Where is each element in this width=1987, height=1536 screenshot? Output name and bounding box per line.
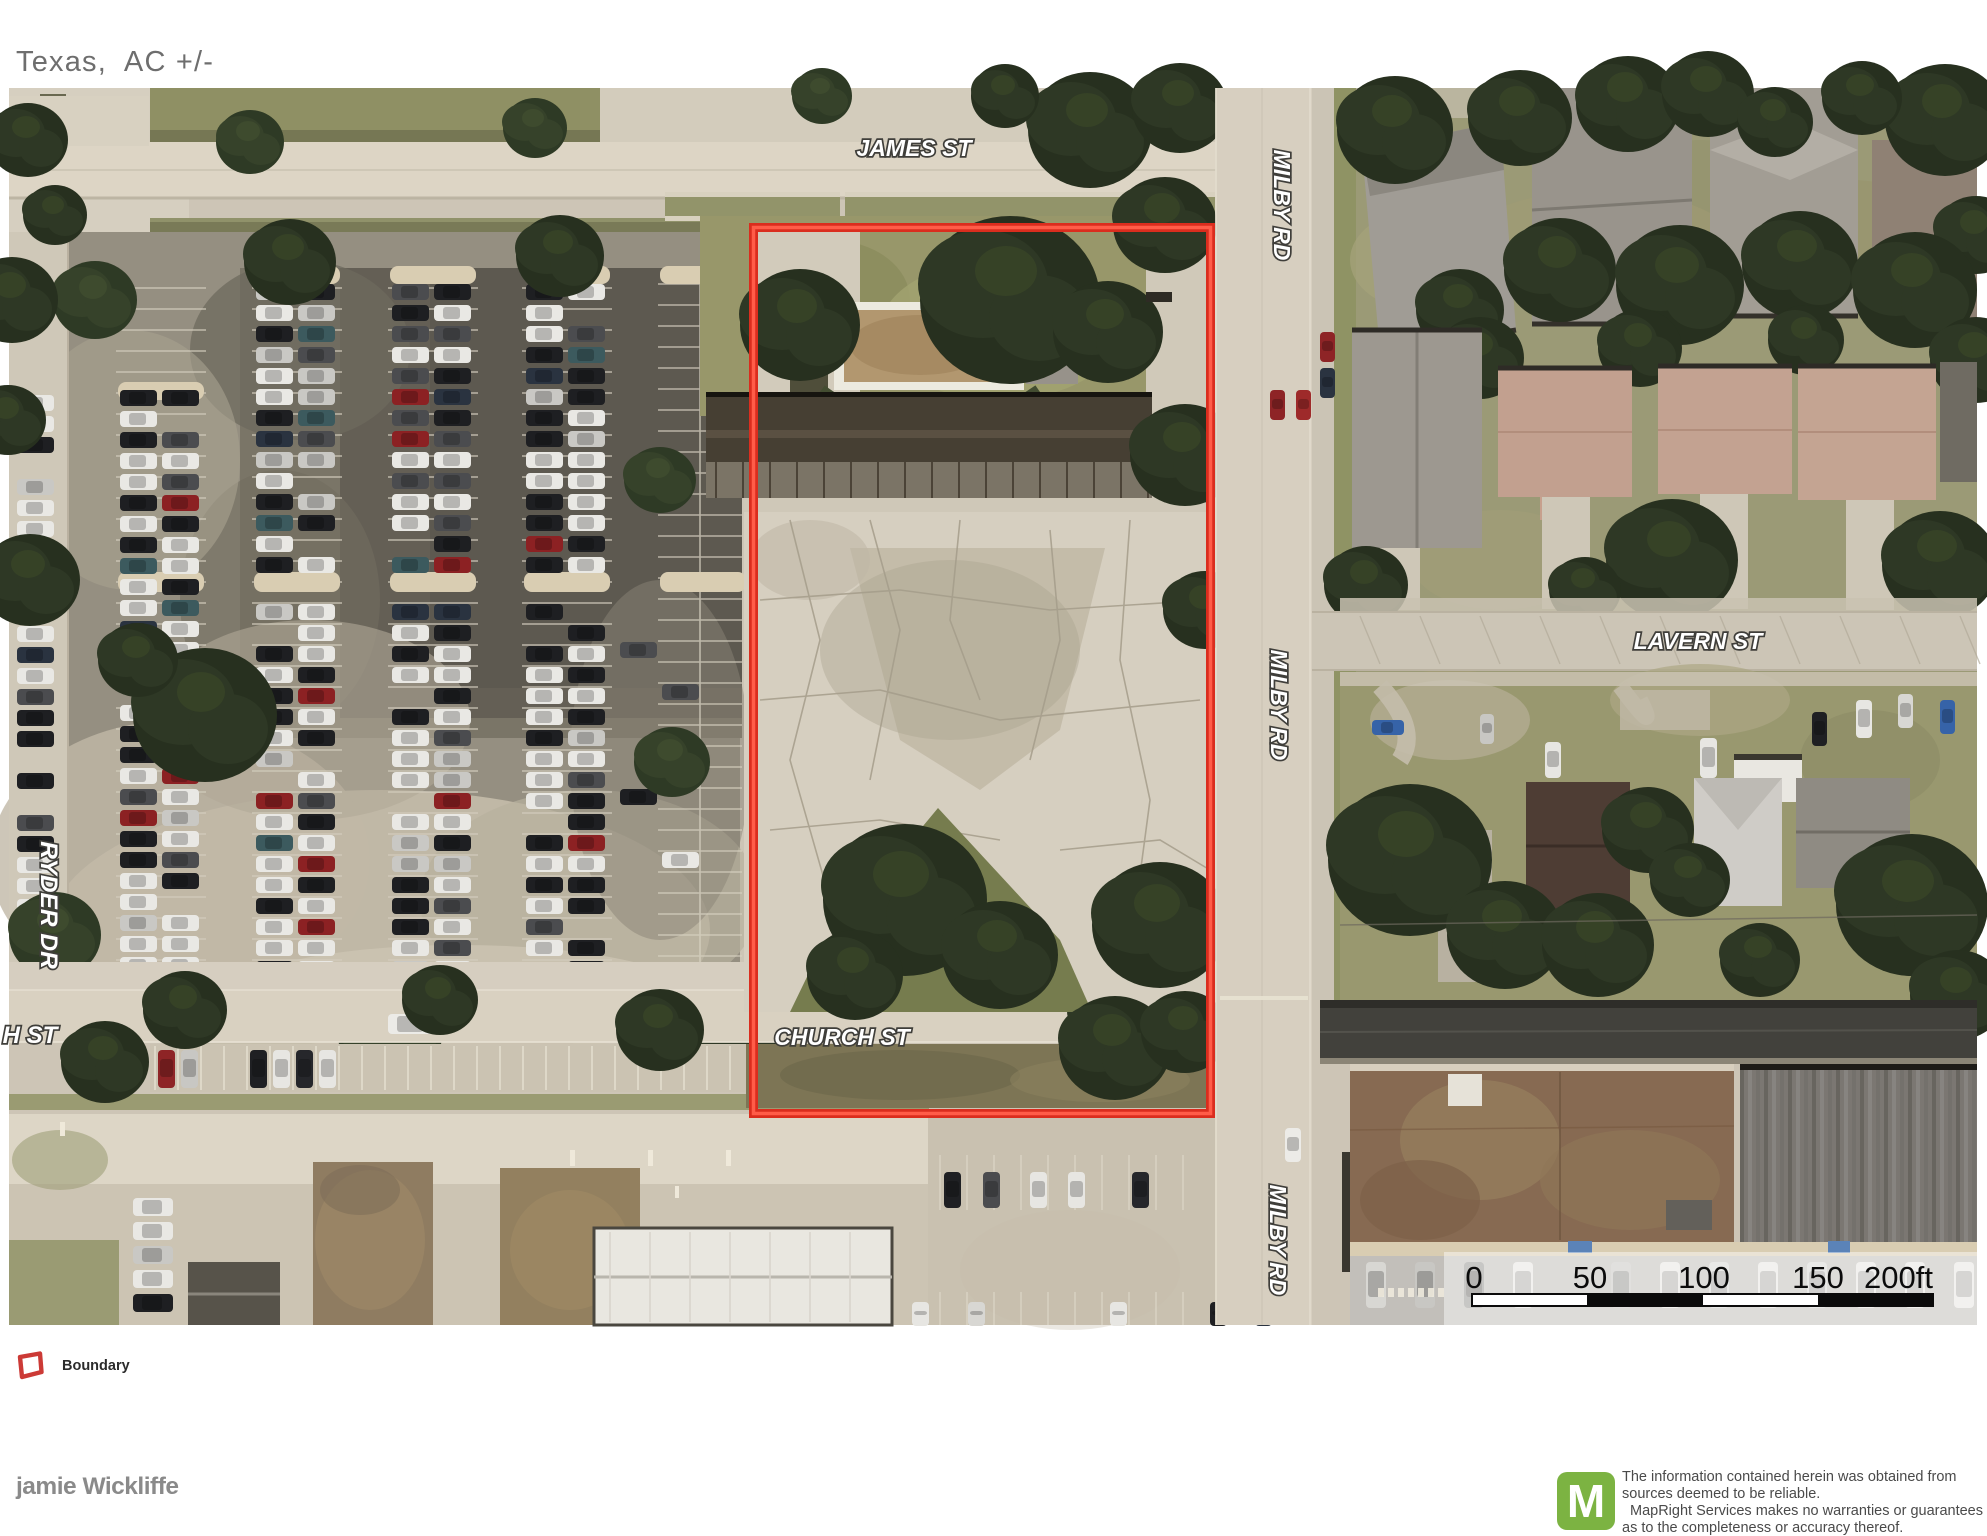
svg-text:jamie Wickliffe: jamie Wickliffe — [15, 1473, 178, 1500]
svg-text:CHURCH ST: CHURCH ST — [774, 1024, 911, 1050]
svg-text:MapRight Services makes no war: MapRight Services makes no warranties or… — [1630, 1503, 1983, 1519]
svg-text:JAMES ST: JAMES ST — [856, 135, 973, 161]
svg-text:MILBY RD: MILBY RD — [1269, 150, 1295, 261]
svg-text:150: 150 — [1792, 1260, 1844, 1295]
svg-text:Boundary: Boundary — [62, 1358, 130, 1374]
svg-text:as to the completeness or accu: as to the completeness or accuracy there… — [1622, 1520, 1903, 1536]
svg-text:sources deemed to be reliable.: sources deemed to be reliable. — [1622, 1486, 1820, 1502]
svg-text:0: 0 — [1465, 1260, 1482, 1295]
svg-text:The information contained here: The information contained herein was obt… — [1622, 1469, 1957, 1485]
svg-text:MILBY RD: MILBY RD — [1266, 650, 1292, 761]
svg-text:Texas, AC +/-: Texas, AC +/- — [16, 46, 214, 78]
svg-text:MILBY RD: MILBY RD — [1265, 1185, 1291, 1296]
svg-text:100: 100 — [1678, 1260, 1730, 1295]
svg-text:H ST: H ST — [3, 1022, 60, 1049]
svg-text:LAVERN ST: LAVERN ST — [1634, 628, 1765, 654]
svg-text:RYDER DR: RYDER DR — [35, 841, 62, 969]
svg-text:200ft: 200ft — [1864, 1260, 1933, 1295]
svg-text:M: M — [1567, 1475, 1605, 1527]
svg-text:50: 50 — [1573, 1260, 1607, 1295]
